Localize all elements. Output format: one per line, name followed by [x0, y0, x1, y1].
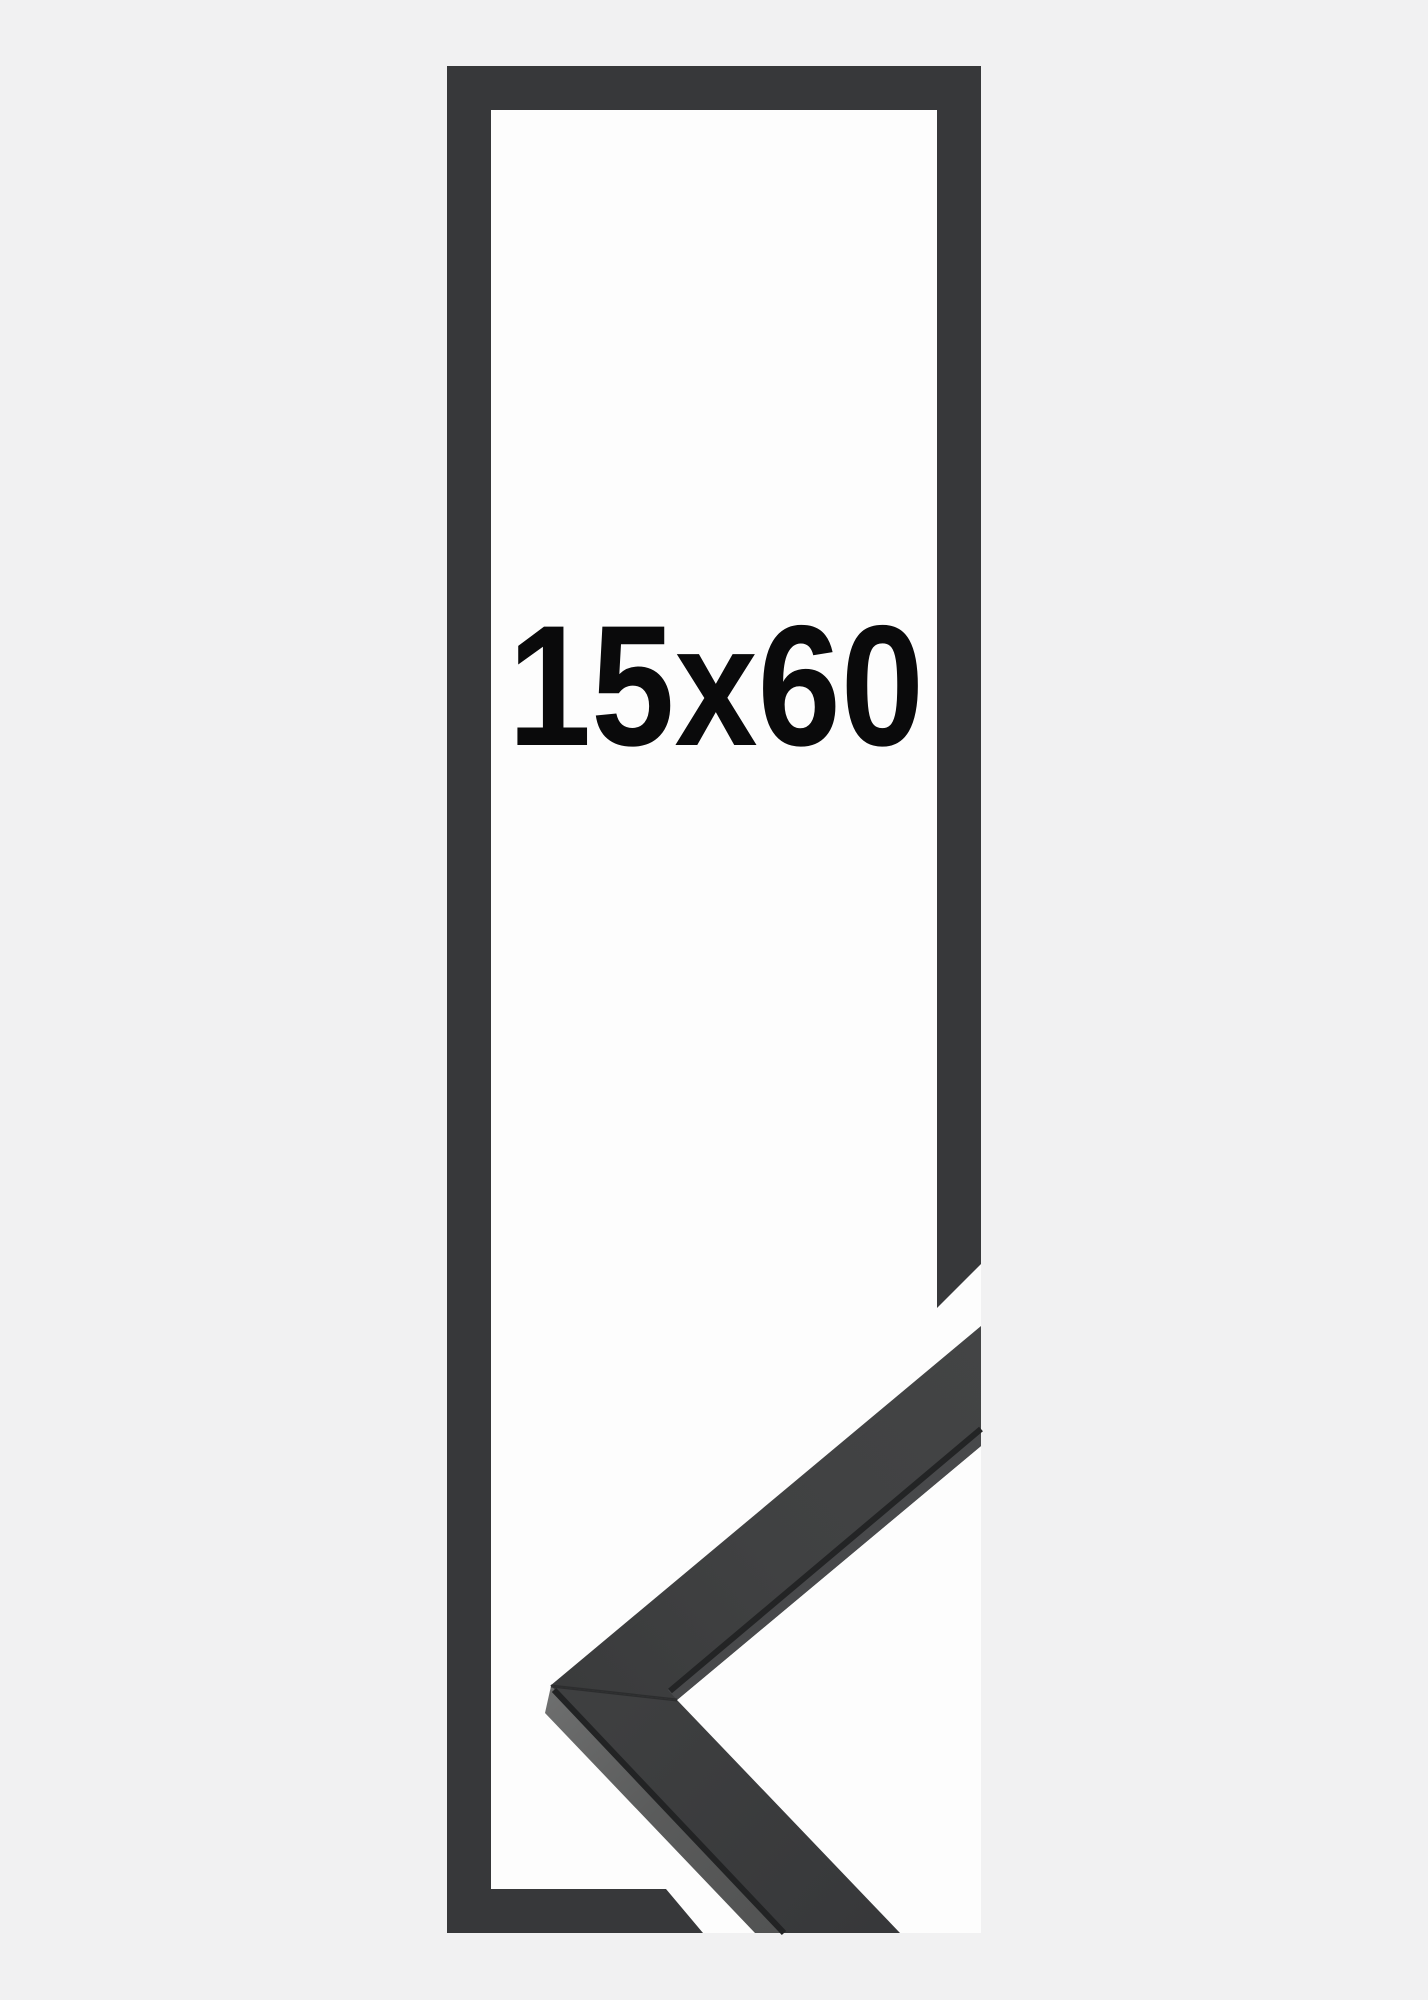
- svg-text:15x60: 15x60: [508, 590, 924, 782]
